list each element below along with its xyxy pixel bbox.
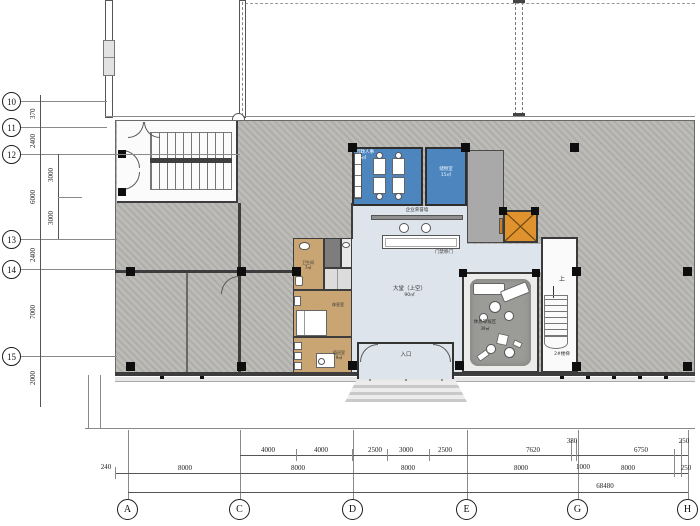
dim-tick bbox=[674, 449, 675, 477]
grid-label: 14 bbox=[7, 265, 16, 275]
column bbox=[237, 362, 246, 371]
toilet-icon bbox=[342, 242, 350, 248]
chair-icon bbox=[395, 193, 402, 200]
curtain-wall-pier bbox=[515, 2, 523, 115]
grid-leader bbox=[467, 430, 468, 499]
dim-label: 250 bbox=[672, 438, 696, 445]
column bbox=[683, 362, 692, 371]
dim-label: 7000 bbox=[30, 298, 37, 326]
grid-label: E bbox=[463, 504, 469, 515]
wall bbox=[115, 270, 297, 273]
desk bbox=[392, 177, 405, 194]
column bbox=[459, 269, 467, 277]
door-leaf bbox=[103, 40, 115, 76]
dark-utility-room bbox=[324, 238, 341, 268]
wall-center-line bbox=[242, 2, 243, 116]
dim-label: 370 bbox=[30, 102, 37, 126]
grid-bubble-D: D bbox=[342, 499, 363, 520]
grid-bubble-H: H bbox=[677, 499, 698, 520]
room-label: 储物室 15㎡ bbox=[427, 167, 465, 179]
stair2-label: 2#楼梯 bbox=[548, 352, 576, 358]
chair-icon bbox=[318, 358, 325, 365]
duty-label: 值班室 9㎡ bbox=[328, 350, 350, 360]
window-mullion bbox=[200, 376, 204, 379]
dim-label: 1000 bbox=[567, 464, 599, 471]
shower-cell bbox=[324, 268, 352, 290]
window-mullion bbox=[160, 376, 164, 379]
grid-label: A bbox=[124, 504, 131, 515]
door-line bbox=[104, 57, 114, 58]
partition bbox=[186, 273, 188, 373]
dim-tick bbox=[352, 449, 353, 461]
grid-bubble-G: G bbox=[567, 499, 588, 520]
lounge-label: 休息等候区 39㎡ bbox=[468, 320, 502, 331]
wall bbox=[351, 203, 353, 239]
chair-icon bbox=[376, 193, 383, 200]
stair2-treads bbox=[544, 295, 568, 337]
entrance-label: 入口 bbox=[386, 352, 426, 359]
room-area: 39㎡ bbox=[468, 326, 502, 331]
grid-label: 15 bbox=[7, 352, 16, 362]
reception-counter bbox=[382, 235, 460, 249]
grid-bubble-10: 10 bbox=[2, 92, 21, 111]
grid-leader bbox=[128, 430, 129, 499]
sink-icon bbox=[295, 276, 303, 286]
dim-label: 4000 bbox=[303, 447, 339, 454]
grid-bubble-C: C bbox=[229, 499, 250, 520]
dim-label: 380 bbox=[560, 438, 584, 445]
grid-label: H bbox=[684, 504, 691, 515]
column bbox=[348, 361, 357, 370]
entrance-steps bbox=[345, 381, 467, 402]
grid-bubble-13: 13 bbox=[2, 230, 21, 249]
column bbox=[461, 143, 470, 152]
column bbox=[126, 362, 135, 371]
dim-label: 8000 bbox=[280, 465, 316, 472]
window-mullion bbox=[664, 376, 668, 379]
grid-bubble-11: 11 bbox=[2, 118, 21, 137]
lobby-label: 大堂（上空） 90㎡ bbox=[362, 286, 457, 299]
dim-label: 8000 bbox=[610, 465, 646, 472]
dim-line bbox=[240, 455, 688, 456]
column bbox=[292, 267, 301, 276]
dim-label: 3000 bbox=[390, 447, 422, 454]
exterior-wall bbox=[115, 372, 357, 376]
bed-pillow bbox=[297, 311, 305, 335]
room-area: 90㎡ bbox=[362, 293, 457, 299]
cabinet bbox=[294, 342, 302, 350]
roof-edge-line bbox=[240, 3, 695, 4]
dim-label: 8000 bbox=[390, 465, 426, 472]
round-table-icon bbox=[504, 347, 515, 358]
window-mullion bbox=[638, 376, 642, 379]
grid-leader bbox=[353, 430, 354, 499]
grid-line bbox=[21, 239, 117, 240]
dim-leader bbox=[58, 197, 82, 198]
column bbox=[455, 361, 464, 370]
window-mullion bbox=[586, 376, 590, 379]
honor-wall-label: 企业荣誉墙 bbox=[371, 208, 463, 214]
column bbox=[570, 143, 579, 152]
dim-label: 6750 bbox=[623, 447, 659, 454]
dim-label: 7620 bbox=[515, 447, 551, 454]
table bbox=[496, 333, 509, 346]
dim-label: 8000 bbox=[503, 465, 539, 472]
rest-label: 休息室 bbox=[326, 302, 350, 307]
grid-label: 12 bbox=[7, 150, 16, 160]
desk bbox=[392, 158, 405, 175]
column bbox=[348, 143, 357, 152]
dim-label: 8000 bbox=[167, 465, 203, 472]
stair1-landing bbox=[150, 158, 232, 163]
grid-label: 11 bbox=[7, 123, 16, 133]
cabinet bbox=[294, 296, 301, 306]
grid-label: D bbox=[349, 504, 356, 515]
grid-label: C bbox=[236, 504, 243, 515]
dim-total-label: 68480 bbox=[583, 483, 627, 490]
stool-icon bbox=[421, 223, 431, 233]
stair2-curve bbox=[544, 337, 568, 349]
column bbox=[531, 207, 539, 215]
cabinet bbox=[294, 352, 302, 360]
cabinet bbox=[294, 362, 302, 370]
grid-bubble-14: 14 bbox=[2, 260, 21, 279]
room-area: 15㎡ bbox=[427, 173, 465, 179]
grid-label: 10 bbox=[7, 97, 16, 107]
dim-line bbox=[115, 473, 688, 474]
facade-line bbox=[105, 116, 695, 117]
grid-bubble-A: A bbox=[117, 499, 138, 520]
room-area: 16㎡ bbox=[356, 156, 388, 162]
dim-tick bbox=[296, 449, 297, 461]
dim-label: 3000 bbox=[48, 162, 55, 188]
column bbox=[572, 362, 581, 371]
dim-label: 2500 bbox=[357, 447, 393, 454]
grid-label: G bbox=[574, 504, 581, 515]
dim-label: 6000 bbox=[30, 183, 37, 211]
dim-label: 2400 bbox=[30, 128, 37, 154]
honor-wall bbox=[371, 215, 463, 220]
dim-label: 2400 bbox=[30, 241, 37, 269]
floor-plan: 行政人事 16㎡ 储物室 15㎡ 企业荣誉墙 门禁移门 大堂（上空） 90㎡ bbox=[0, 0, 700, 526]
dim-label: 250 bbox=[674, 465, 698, 472]
elevator-door bbox=[499, 218, 503, 234]
grid-bubble-E: E bbox=[456, 499, 477, 520]
boundary-line bbox=[88, 375, 89, 428]
column bbox=[237, 267, 246, 276]
boundary-line bbox=[100, 375, 101, 428]
dim-line bbox=[128, 492, 688, 493]
column bbox=[118, 188, 126, 196]
grid-line bbox=[21, 154, 240, 155]
grid-bubble-15: 15 bbox=[2, 347, 21, 366]
window-mullion bbox=[560, 376, 564, 379]
toilet-icon bbox=[299, 242, 310, 250]
counter-inner-line bbox=[385, 238, 457, 247]
chair-icon bbox=[395, 152, 402, 159]
grid-line bbox=[21, 269, 117, 270]
window-mullion bbox=[612, 376, 616, 379]
dim-label: 4000 bbox=[250, 447, 286, 454]
access-door-label: 门禁移门 bbox=[424, 250, 464, 256]
grid-label: 13 bbox=[7, 235, 16, 245]
desk bbox=[373, 177, 386, 194]
grid-line bbox=[21, 356, 117, 357]
dim-line bbox=[40, 95, 41, 407]
column bbox=[499, 207, 507, 215]
dim-label: 2000 bbox=[30, 364, 37, 392]
plot-boundary-line bbox=[85, 428, 695, 429]
column bbox=[683, 267, 692, 276]
column bbox=[572, 267, 581, 276]
pier-cap bbox=[513, 0, 525, 3]
dim-label: 3000 bbox=[48, 205, 55, 231]
column bbox=[126, 267, 135, 276]
room-label: 行政人事 16㎡ bbox=[356, 150, 388, 162]
dim-label: 2500 bbox=[429, 447, 461, 454]
elevator-x-icon bbox=[505, 212, 536, 241]
dim-tick bbox=[115, 467, 116, 479]
room-area: 9㎡ bbox=[328, 355, 350, 360]
stair-up-label: 上 bbox=[556, 276, 568, 284]
round-table-icon bbox=[489, 301, 501, 313]
grid-leader bbox=[240, 430, 241, 499]
round-table-icon bbox=[504, 311, 514, 321]
column bbox=[532, 269, 540, 277]
grid-bubble-12: 12 bbox=[2, 145, 21, 164]
stool-icon bbox=[399, 223, 409, 233]
exterior-wall bbox=[454, 372, 695, 376]
dim-label: 240 bbox=[97, 464, 115, 471]
